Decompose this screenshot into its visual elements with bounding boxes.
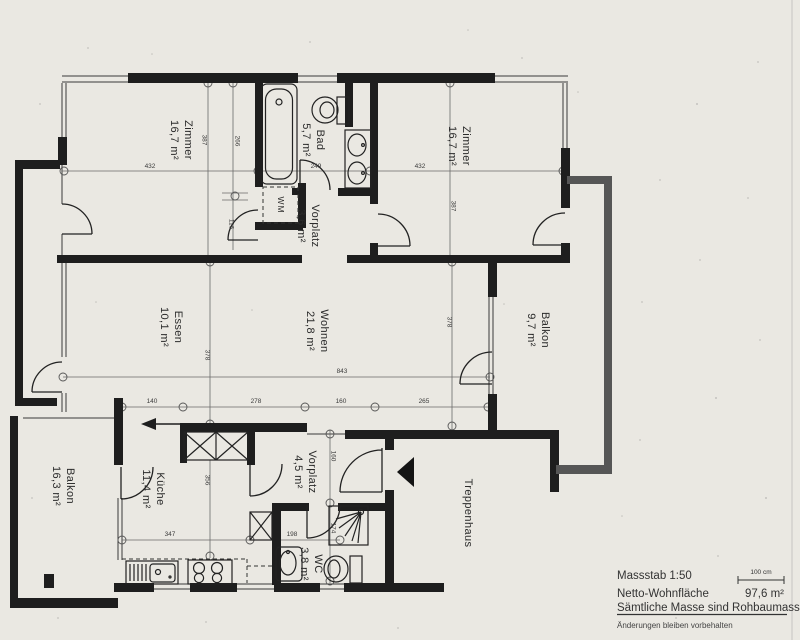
room-area-wohnen: 21,8 m²	[304, 311, 316, 351]
speck	[675, 617, 677, 619]
speck	[757, 61, 759, 63]
room-label-wohnen: Wohnen	[318, 309, 330, 352]
dim-zr-height: 387	[450, 201, 457, 212]
speck	[659, 179, 661, 181]
speck	[577, 91, 579, 93]
speck	[39, 103, 41, 105]
net-area-value: 97,6 m²	[745, 588, 784, 600]
dim-wc-height: 174	[330, 523, 337, 534]
speck	[87, 47, 89, 49]
dim-kueche-width: 347	[165, 531, 176, 538]
speck	[641, 301, 643, 303]
speck	[521, 57, 523, 59]
room-label-vorplatz-upper: Vorplatz	[309, 205, 321, 248]
washing-machine-label: WM	[276, 196, 286, 213]
dim-essen-height: 378	[204, 350, 211, 361]
dim-wohnen-height: 378	[446, 317, 453, 328]
floor-plan-drawing: Zimmer 16,7 m² Bad 5,7 m² Zimmer 16,7 m²…	[0, 0, 800, 640]
dim-zl-height2: 266	[234, 136, 241, 147]
dim-grid-a: 140	[147, 398, 158, 405]
room-area-essen: 10,1 m²	[158, 307, 170, 347]
speck	[397, 627, 399, 629]
room-area-bad: 5,7 m²	[300, 123, 312, 157]
dim-bad-width: 249	[311, 163, 322, 170]
dim-zr-width: 432	[415, 163, 426, 170]
room-area-balkon-right: 9,7 m²	[525, 313, 537, 347]
speck	[205, 621, 207, 623]
speck	[747, 197, 749, 199]
paper-background	[0, 0, 800, 640]
speck	[759, 339, 761, 341]
speck	[621, 515, 623, 517]
room-area-kueche: 11,4 m²	[140, 469, 152, 508]
room-area-vorplatz-upper: 3,6 m²	[295, 209, 307, 243]
dim-grid-b: 278	[251, 398, 262, 405]
scale-label: Massstab 1:50	[617, 570, 692, 582]
dim-grid-c: 160	[336, 398, 347, 405]
room-area-vorplatz-lower: 4,5 m²	[292, 455, 304, 489]
room-label-treppenhaus: Treppenhaus	[462, 479, 474, 548]
room-area-wc: 3,8 m²	[298, 547, 310, 581]
dim-wc-width: 198	[287, 531, 298, 538]
speck	[467, 29, 469, 31]
speck	[717, 555, 719, 557]
dim-living-width: 843	[337, 368, 348, 375]
room-area-zimmer-right: 16,7 m²	[446, 126, 458, 166]
room-label-vorplatz-lower: Vorplatz	[306, 451, 318, 494]
dim-zl-door: 116	[228, 219, 235, 230]
speck	[765, 497, 767, 499]
speck	[31, 497, 33, 499]
speck	[95, 301, 97, 303]
speck	[57, 617, 59, 619]
dim-zl-width: 432	[145, 163, 156, 170]
room-area-zimmer-left: 16,7 m²	[168, 120, 180, 160]
room-label-balkon-right: Balkon	[539, 312, 551, 348]
room-label-balkon-left: Balkon	[64, 468, 76, 504]
dim-grid-d: 265	[419, 398, 430, 405]
speck	[503, 303, 505, 305]
note-changes: Änderungen bleiben vorbehalten	[617, 621, 733, 630]
speck	[699, 259, 701, 261]
room-label-zimmer-right: Zimmer	[460, 126, 472, 166]
note-masses: Sämtliche Masse sind Rohbaumasse	[617, 602, 800, 614]
dim-vorplatz-height: 160	[330, 451, 337, 462]
dim-zl-height: 387	[201, 135, 208, 146]
room-label-zimmer-left: Zimmer	[182, 120, 194, 160]
scanned-floor-plan-page: Zimmer 16,7 m² Bad 5,7 m² Zimmer 16,7 m²…	[0, 0, 800, 640]
speck	[251, 309, 253, 311]
room-label-essen: Essen	[172, 311, 184, 344]
room-area-balkon-left: 16,3 m²	[50, 466, 62, 506]
speck	[696, 103, 698, 105]
room-label-wc: WC	[312, 554, 324, 573]
speck	[715, 397, 717, 399]
room-label-kueche: Küche	[154, 472, 166, 505]
speck	[639, 439, 641, 441]
speck	[151, 53, 153, 55]
net-area-label: Netto-Wohnfläche	[617, 588, 709, 600]
scale-bar-label: 100 cm	[750, 569, 771, 576]
room-label-bad: Bad	[314, 130, 326, 151]
dim-kueche-height: 356	[204, 475, 211, 486]
speck	[309, 41, 311, 43]
